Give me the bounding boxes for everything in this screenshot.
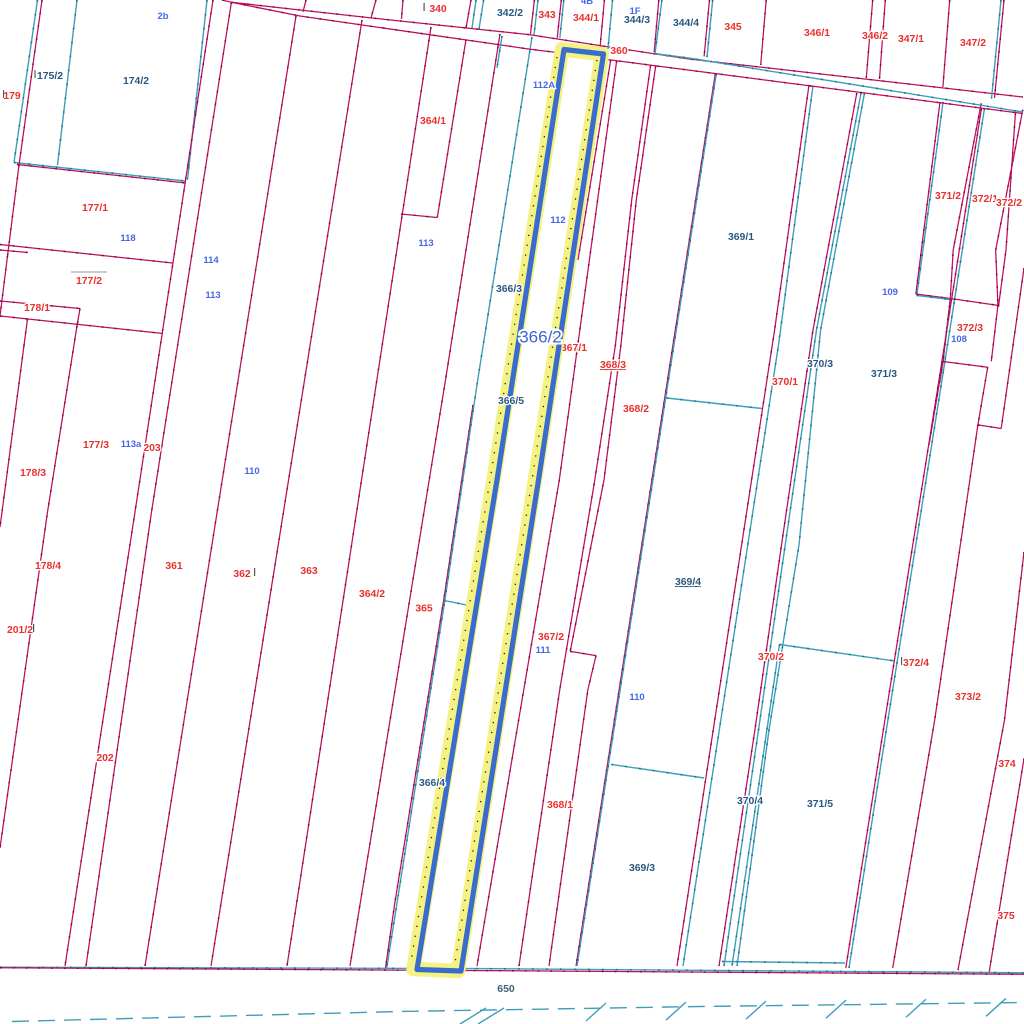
svg-text:364/1: 364/1 (420, 116, 446, 127)
svg-text:109: 109 (882, 287, 898, 298)
svg-text:178/3: 178/3 (20, 468, 46, 479)
svg-text:366/5: 366/5 (498, 396, 524, 407)
svg-text:178/1: 178/1 (24, 303, 50, 314)
svg-text:372/4: 372/4 (903, 658, 929, 669)
svg-text:203: 203 (143, 443, 161, 454)
svg-text:370/3: 370/3 (807, 359, 833, 370)
svg-text:110: 110 (244, 466, 259, 477)
svg-text:347/1: 347/1 (898, 34, 924, 45)
svg-text:370/4: 370/4 (737, 796, 763, 807)
svg-text:368/3: 368/3 (600, 360, 626, 371)
svg-text:372/2: 372/2 (996, 198, 1022, 209)
svg-text:177/1: 177/1 (82, 203, 108, 214)
svg-text:369/3: 369/3 (629, 863, 655, 874)
svg-text:201/2: 201/2 (7, 625, 33, 636)
svg-text:364/2: 364/2 (359, 589, 385, 600)
svg-text:110: 110 (629, 692, 644, 703)
svg-text:370/2: 370/2 (758, 652, 784, 663)
svg-text:371/3: 371/3 (871, 369, 897, 380)
svg-text:371/2: 371/2 (935, 191, 961, 202)
svg-text:371/5: 371/5 (807, 799, 833, 810)
svg-text:346/1: 346/1 (804, 28, 830, 39)
svg-text:202: 202 (96, 753, 114, 764)
svg-text:344/4: 344/4 (673, 18, 699, 29)
svg-text:178/4: 178/4 (35, 561, 61, 572)
svg-text:118: 118 (120, 233, 135, 244)
svg-text:344/1: 344/1 (573, 13, 599, 24)
svg-text:179: 179 (3, 91, 21, 102)
svg-text:177/3: 177/3 (83, 440, 109, 451)
svg-text:370/1: 370/1 (772, 377, 798, 388)
svg-text:368/2: 368/2 (623, 404, 649, 415)
svg-text:650: 650 (497, 983, 515, 995)
svg-text:111: 111 (536, 645, 552, 656)
svg-text:177/2: 177/2 (76, 276, 102, 287)
svg-text:112A: 112A (533, 80, 555, 91)
svg-text:108: 108 (951, 334, 967, 345)
svg-text:346/2: 346/2 (862, 31, 888, 42)
svg-text:369/4: 369/4 (675, 577, 701, 588)
svg-text:367/2: 367/2 (538, 632, 564, 643)
svg-text:368/1: 368/1 (547, 800, 573, 811)
svg-text:361: 361 (165, 561, 183, 572)
svg-text:365: 365 (415, 604, 433, 615)
svg-text:366/2: 366/2 (519, 328, 562, 347)
svg-text:113a: 113a (121, 439, 142, 450)
svg-text:363: 363 (300, 566, 318, 577)
svg-text:347/2: 347/2 (960, 38, 986, 49)
svg-text:113: 113 (205, 290, 220, 301)
svg-text:344/3: 344/3 (624, 15, 650, 26)
svg-text:4B: 4B (581, 0, 593, 7)
svg-text:114: 114 (203, 255, 219, 266)
svg-text:372/1: 372/1 (972, 194, 998, 205)
svg-text:375: 375 (997, 911, 1015, 922)
svg-text:174/2: 174/2 (123, 76, 149, 87)
svg-text:2b: 2b (157, 11, 168, 22)
svg-text:366/3: 366/3 (496, 284, 522, 295)
svg-text:362: 362 (233, 569, 251, 580)
svg-text:342/2: 342/2 (497, 8, 523, 19)
svg-text:369/1: 369/1 (728, 232, 754, 243)
svg-text:340: 340 (429, 4, 447, 15)
svg-text:345: 345 (724, 22, 742, 33)
svg-text:367/1: 367/1 (561, 343, 587, 354)
svg-text:360: 360 (610, 46, 628, 57)
svg-text:366/4: 366/4 (419, 778, 445, 789)
svg-text:343: 343 (538, 10, 556, 21)
svg-text:373/2: 373/2 (955, 692, 981, 703)
svg-text:175/2: 175/2 (37, 71, 63, 82)
svg-text:374: 374 (998, 759, 1016, 770)
svg-text:113: 113 (418, 238, 433, 249)
svg-text:372/3: 372/3 (957, 323, 983, 334)
svg-text:112: 112 (550, 215, 565, 226)
